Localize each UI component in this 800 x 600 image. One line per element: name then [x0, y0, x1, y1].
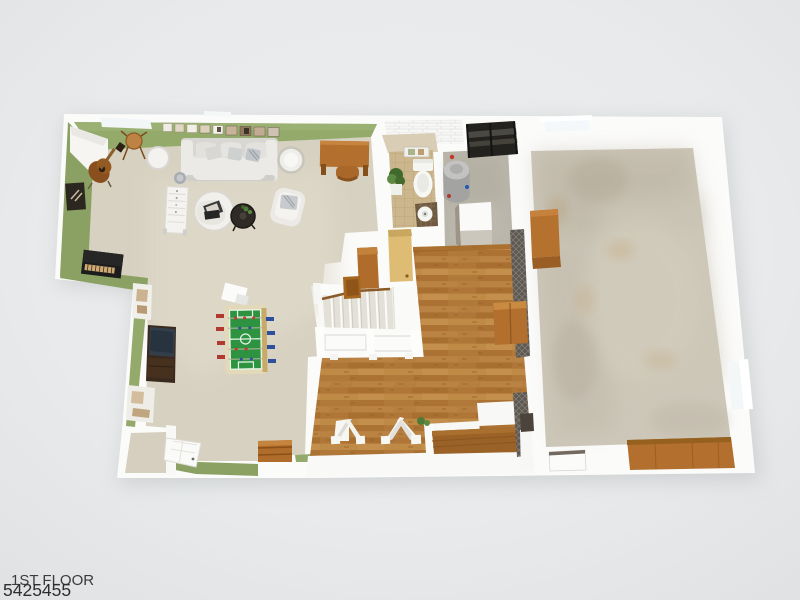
svg-text:5425455: 5425455 [3, 580, 71, 600]
